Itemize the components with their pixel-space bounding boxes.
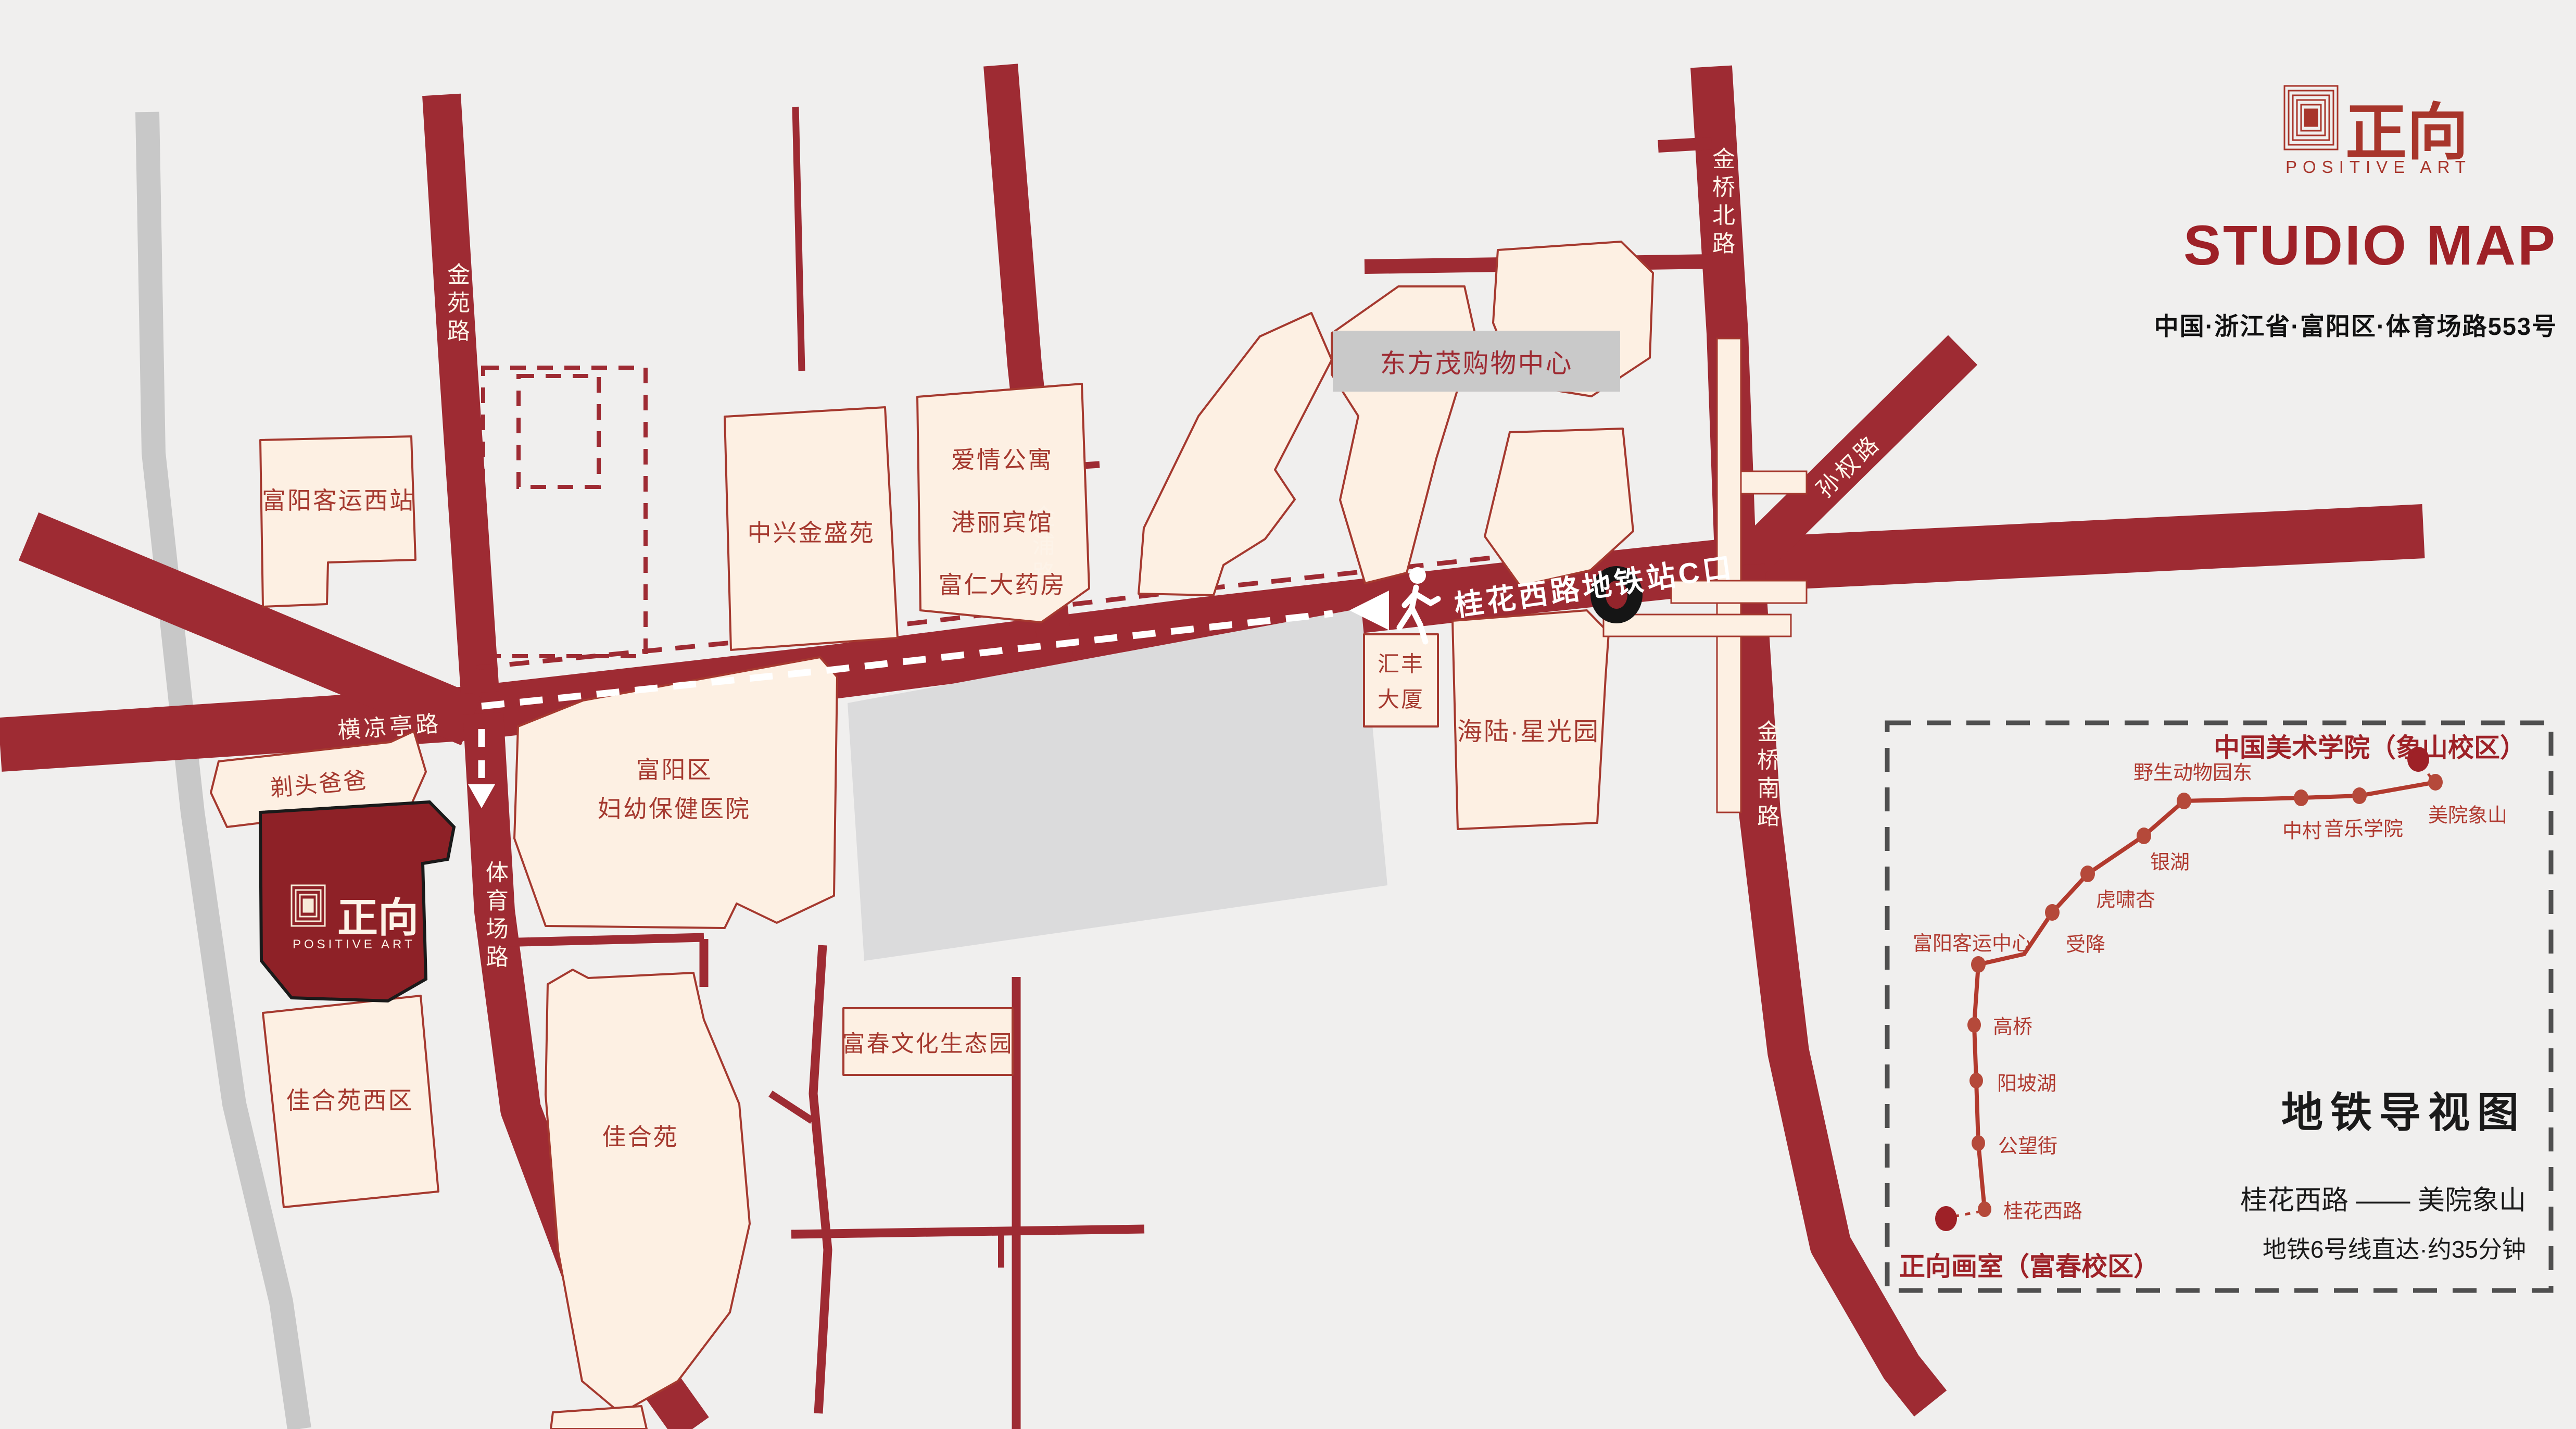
station-label-shoujiang: 受降: [2066, 929, 2105, 957]
page-title: STUDIO MAP: [2183, 212, 2557, 278]
station-label-yinyue-xueyuan: 音乐学院: [2324, 813, 2403, 842]
road-lane-horiz: [791, 1229, 1144, 1234]
station-label-zhongcun: 中村: [2282, 815, 2322, 844]
building-dfm-1: [1139, 313, 1332, 595]
label-west-station: 富阳客运西站: [262, 482, 415, 516]
label-fuchun-park: 富春文化生态园: [842, 1025, 1014, 1058]
station-label-fuyang-keyun: 富阳客运中心: [1913, 927, 2031, 956]
overpass-arm-upper: [1741, 471, 1807, 494]
road-lane-wavy: [813, 945, 828, 1413]
label-huifeng-2: 大厦: [1378, 682, 1424, 714]
brand-name-en: POSITIVE ART: [2285, 157, 2471, 177]
label-jiahe: 佳合苑: [602, 1118, 679, 1152]
road-branch-southwest: [29, 536, 471, 721]
road-label-jinqiao-north: 金桥北路: [1704, 147, 1738, 259]
dashed-plot-inner: [519, 376, 599, 487]
dashed-plot-outer: [483, 368, 646, 656]
metro-origin-label: 正向画室（富春校区）: [1899, 1246, 2160, 1283]
metro-dest-label: 中国美术学院（象山校区）: [2214, 727, 2526, 764]
road-label-tiyuchang: 体育场路: [478, 860, 511, 973]
road-lane-jiahe-top: [500, 937, 704, 943]
studio-brand-en: POSITIVE ART: [293, 937, 415, 952]
studio-map-page: 横凉亭路 金苑路 金浦路 金桥北路 孙权路 金桥南路 体育场路 桂花西路地铁站C…: [0, 0, 2576, 1429]
building-jiahe: [546, 970, 750, 1413]
label-zhongxing: 中兴金盛苑: [748, 514, 875, 548]
station-label-huxiaoxing: 虎啸杏: [2096, 884, 2155, 912]
label-hospital-1: 富阳区: [636, 751, 713, 785]
building-bottom-wedge: [551, 1406, 647, 1429]
station-label-meiyuan-xiangshan: 美院象山: [2428, 799, 2507, 828]
road-jinyuan: [441, 95, 480, 693]
metro-panel-title: 地铁导视图: [2281, 1079, 2526, 1139]
label-huifeng-1: 汇丰: [1378, 647, 1424, 679]
road-label-jinyuan: 金苑路: [439, 262, 473, 347]
label-aiqing: 爱情公寓: [951, 441, 1053, 475]
studio-brand-cn: 正向: [337, 885, 419, 944]
station-label-yinhu: 银湖: [2150, 846, 2190, 875]
metro-route-text: 桂花西路 —— 美院象山: [2240, 1179, 2526, 1218]
road-thin-north: [795, 107, 802, 371]
page-address: 中国·浙江省·富阳区·体育场路553号: [2154, 306, 2557, 342]
building-west-station: [260, 436, 415, 607]
label-gangli: 港丽宾馆: [951, 504, 1053, 538]
label-hospital-2: 妇幼保健医院: [598, 790, 751, 824]
station-label-yangpohu: 阳坡湖: [1997, 1068, 2056, 1096]
station-label-gongwangjie: 公望街: [1998, 1130, 2057, 1159]
road-label-jinqiao-south: 金桥南路: [1749, 720, 1783, 832]
metro-origin-dot: [1935, 1206, 1957, 1231]
metro-connector-origin: [1953, 1211, 1981, 1217]
label-dongfangmao: 东方茂购物中心: [1380, 343, 1573, 380]
metro-note-text: 地铁6号线直达·约35分钟: [2263, 1231, 2526, 1265]
brand-logo-icon: [2284, 86, 2338, 149]
station-label-gaoqiao: 高桥: [1993, 1011, 2032, 1039]
label-furen: 富仁大药房: [939, 566, 1066, 600]
station-label-guihuaxilu: 桂花西路: [2003, 1195, 2082, 1224]
label-hailu: 海陆·星光园: [1457, 711, 1600, 747]
label-jiahe-west: 佳合苑西区: [286, 1082, 414, 1116]
road-top-stub: [1658, 143, 1712, 146]
road-lane-diag: [771, 1094, 812, 1121]
